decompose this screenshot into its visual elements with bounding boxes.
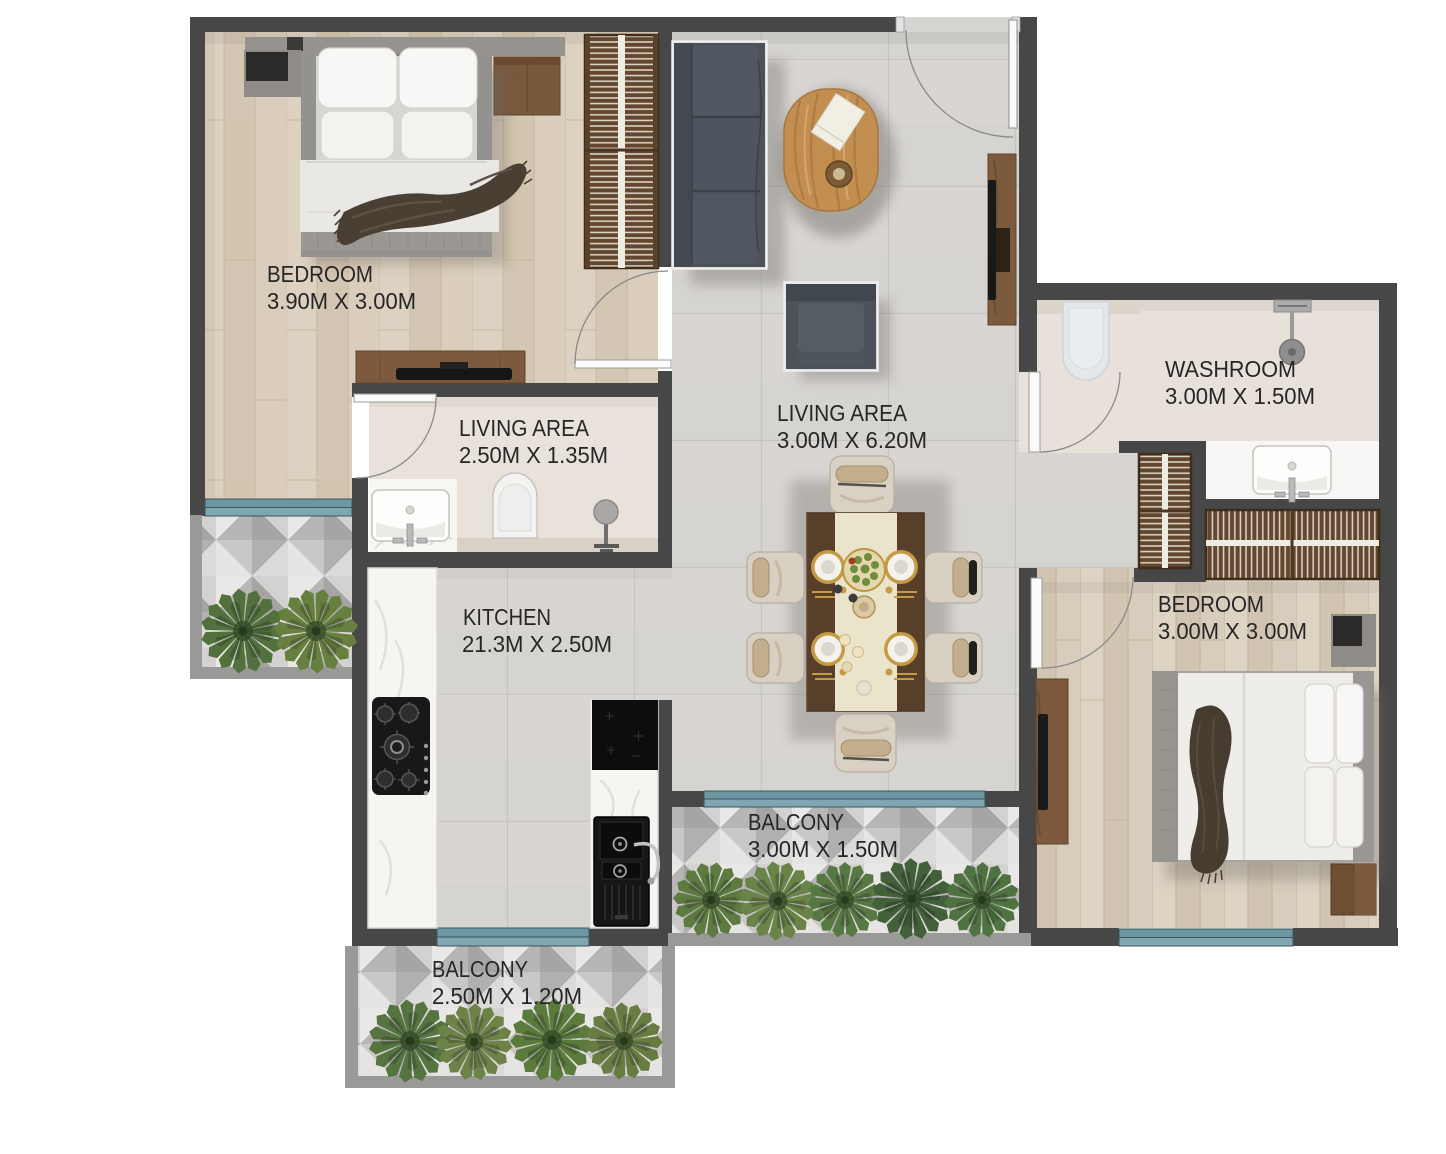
svg-text:BEDROOM: BEDROOM [1158,591,1264,617]
svg-text:2.50M X 1.35M: 2.50M X 1.35M [459,442,608,468]
svg-text:BEDROOM: BEDROOM [267,261,373,287]
svg-text:WASHROOM: WASHROOM [1165,356,1296,382]
svg-text:3.00M X 1.50M: 3.00M X 1.50M [748,836,898,862]
svg-text:LIVING AREA: LIVING AREA [459,415,589,441]
svg-text:3.00M X 3.00M: 3.00M X 3.00M [1158,618,1307,644]
svg-text:2.50M X 1.20M: 2.50M X 1.20M [432,983,582,1009]
svg-text:3.00M X 6.20M: 3.00M X 6.20M [777,427,927,453]
svg-text:KITCHEN: KITCHEN [463,604,551,630]
svg-text:21.3M X 2.50M: 21.3M X 2.50M [462,631,612,657]
svg-text:3.90M X 3.00M: 3.90M X 3.00M [267,288,416,314]
svg-text:BALCONY: BALCONY [432,956,528,982]
svg-text:LIVING AREA: LIVING AREA [777,400,907,426]
svg-text:3.00M X 1.50M: 3.00M X 1.50M [1165,383,1315,409]
svg-text:BALCONY: BALCONY [748,809,844,835]
